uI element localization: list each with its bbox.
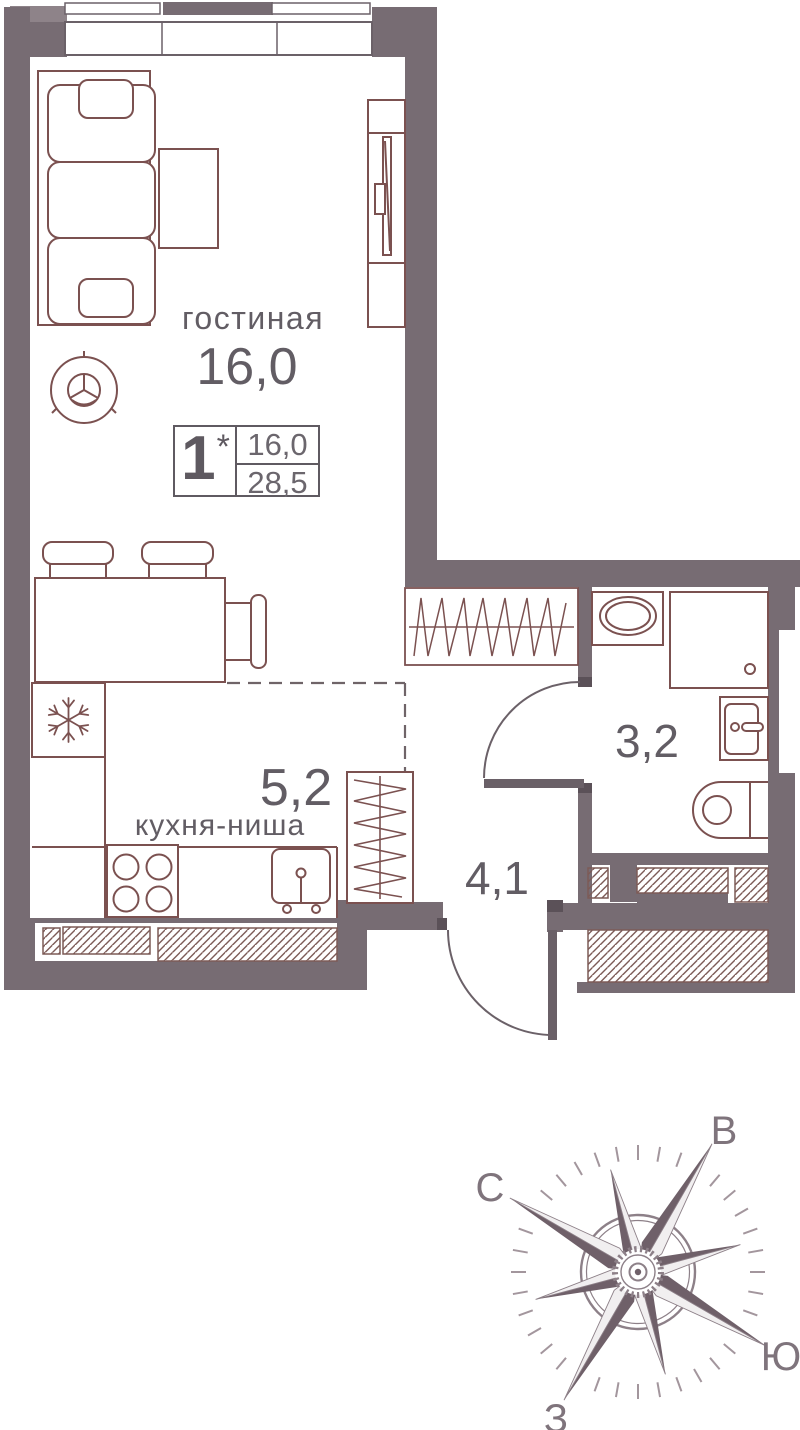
floor-plan-page: гостиная 16,0 5,2 кухня-ниша 3,2 4,1 1 *…	[0, 0, 800, 1430]
dining-table	[35, 578, 225, 682]
washer-handle	[742, 723, 763, 731]
kitchen-label: кухня-ниша	[135, 811, 305, 841]
vent-shaft-icon	[43, 928, 60, 954]
sofa	[38, 71, 155, 325]
bathroom-sink	[592, 592, 663, 645]
faucet-tap	[312, 905, 320, 913]
dining-chair-side	[225, 595, 266, 668]
wall-right-top	[768, 587, 795, 630]
sofa-pillow	[79, 80, 133, 118]
balcony-parapet	[65, 3, 160, 14]
wall-right-bottom	[768, 773, 795, 993]
vent-shaft-icon	[588, 868, 608, 898]
balcony-parapet	[272, 3, 370, 14]
coffee-table	[159, 149, 218, 248]
window	[65, 22, 372, 55]
rooms-count: 1	[181, 431, 215, 487]
compass-label-west: З	[544, 1399, 568, 1430]
faucet-tap	[283, 905, 291, 913]
tv-bracket	[375, 184, 385, 214]
wall-right-mid	[768, 630, 779, 773]
vent-shaft-icon	[637, 868, 728, 893]
rooms-count-cell: 1 *	[175, 427, 237, 495]
burner	[114, 887, 139, 912]
jamb-cap	[437, 918, 447, 930]
hall-closet	[405, 588, 578, 665]
kitchen-sink	[272, 849, 330, 913]
bathroom-door	[484, 682, 584, 788]
chair-back	[43, 542, 113, 564]
dining-chair	[142, 542, 213, 578]
wall-bath-left-upper	[578, 587, 592, 687]
vent-shaft-icon	[63, 927, 150, 954]
sink-cabinet	[592, 592, 663, 645]
wall-entry-left	[365, 902, 443, 930]
apartment-info-box: 1 * 16,0 28,5	[173, 425, 320, 497]
kitchen-area: 5,2	[260, 762, 332, 814]
stairwell-shaft-icon	[588, 930, 768, 982]
door-leaf	[548, 930, 557, 1040]
dining-chair	[43, 542, 113, 578]
armchair-tick	[52, 409, 56, 413]
living-room-label: гостиная	[182, 302, 324, 334]
wall-parapet-pier	[163, 2, 273, 15]
wall-top-right-block	[405, 560, 800, 587]
hallway-area: 4,1	[465, 855, 529, 901]
stove	[107, 845, 178, 917]
compass-label-north: С	[476, 1168, 505, 1208]
sofa-cushion	[48, 162, 155, 238]
bathroom-area: 3,2	[615, 718, 679, 764]
door-leaf	[484, 779, 584, 788]
areas-cell: 16,0 28,5	[237, 427, 318, 495]
washer-knob	[731, 723, 739, 731]
armchair-tick	[112, 409, 116, 413]
wall-shaft-band	[563, 903, 768, 930]
door-swing-arc	[484, 682, 580, 778]
wall-shaft-bar	[637, 893, 728, 903]
total-area-value: 28,5	[237, 465, 318, 501]
chair-back	[142, 542, 213, 564]
washing-machine	[720, 697, 768, 760]
tv-unit	[368, 100, 405, 327]
toilet	[693, 782, 768, 838]
living-area-value: 16,0	[237, 427, 318, 465]
vent-shaft-icon	[735, 868, 768, 902]
wall-left	[4, 7, 30, 990]
jamb-cap	[578, 677, 592, 687]
compass-label-south: Ю	[761, 1337, 800, 1377]
chair-back	[251, 595, 266, 668]
floor-plan-drawing	[0, 0, 800, 1430]
faucet-knob	[297, 869, 306, 878]
jamb-cap	[547, 900, 563, 912]
vent-shaft-icon	[158, 928, 337, 961]
wall-top-left-corner	[30, 22, 67, 57]
door-swing-arc	[448, 930, 553, 1035]
burner	[147, 887, 172, 912]
wall-right-living	[405, 22, 437, 587]
burner	[147, 855, 172, 880]
shower	[670, 592, 768, 688]
entrance-door	[448, 930, 557, 1040]
wall-shaft-bottom	[577, 982, 795, 993]
living-room-area: 16,0	[196, 341, 297, 393]
kitchen-wardrobe	[347, 772, 413, 903]
burner	[114, 855, 139, 880]
wall-shaft-pier	[610, 863, 637, 902]
armchair	[51, 351, 117, 423]
compass-label-east: В	[711, 1111, 738, 1151]
asterisk: *	[217, 428, 230, 467]
wall-bottom	[4, 963, 367, 990]
compass-rose	[510, 1144, 766, 1400]
sofa-pillow	[79, 279, 133, 317]
